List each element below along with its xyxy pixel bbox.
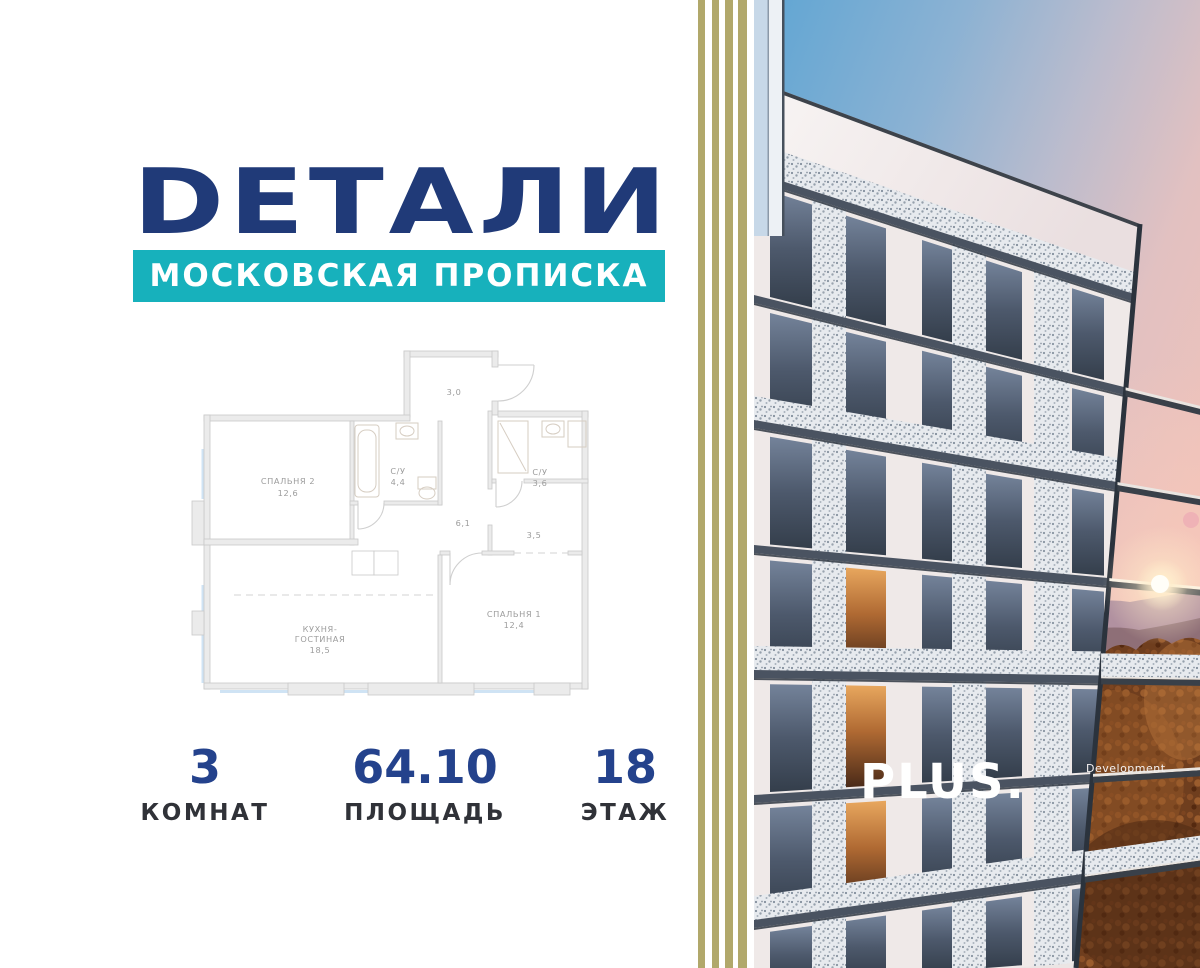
plan-dashed-lines [234, 553, 568, 595]
plan-room-labels: 3,0 СПАЛЬНЯ 2 12,6 С/У 4,4 С/У 3,6 6,1 3… [261, 387, 548, 655]
room-bedroom2-area: 12,6 [278, 488, 299, 498]
room-bedroom2-name: СПАЛЬНЯ 2 [261, 476, 315, 486]
developer-logo-suffix: Development [1086, 762, 1166, 775]
floor-plan: 3,0 СПАЛЬНЯ 2 12,6 С/У 4,4 С/У 3,6 6,1 3… [186, 349, 592, 699]
left-tower-corner [754, 0, 785, 236]
brand-logo: DЕТАЛИ [133, 160, 673, 246]
tagline-banner: МОСКОВСКАЯ ПРОПИСКА [133, 250, 665, 302]
stat-rooms-label: КОМНАТ [120, 800, 290, 826]
building-photo-svg [754, 0, 1200, 968]
divider-stripe [738, 0, 747, 968]
room-hallway-area: 6,1 [456, 518, 471, 528]
room-bath1-area: 4,4 [391, 477, 406, 487]
building-photo: PLUS. Development [754, 0, 1200, 968]
room-kitchen-name2: ГОСТИНАЯ [295, 634, 346, 644]
developer-logo: PLUS. Development [860, 758, 1026, 806]
stat-area-value: 64.10 [320, 744, 530, 790]
room-hall-area: 3,0 [447, 387, 462, 397]
room-bath2-name: С/У [532, 467, 547, 477]
stat-floor-label: ЭТАЖ [560, 800, 690, 826]
divider-stripe [725, 0, 733, 968]
stat-area: 64.10 ПЛОЩАДЬ [320, 744, 530, 826]
brand-logo-text: DЕТАЛИ [133, 160, 671, 246]
stat-floor: 18 ЭТАЖ [560, 744, 690, 826]
plan-fixtures [355, 421, 586, 499]
real-estate-card: DЕТАЛИ МОСКОВСКАЯ ПРОПИСКА [0, 0, 1200, 968]
floor-plan-svg: 3,0 СПАЛЬНЯ 2 12,6 С/У 4,4 С/У 3,6 6,1 3… [186, 349, 592, 699]
room-corridor-area: 3,5 [527, 530, 542, 540]
plan-walls [192, 351, 588, 695]
developer-logo-text: PLUS. [860, 754, 1026, 810]
tagline-text: МОСКОВСКАЯ ПРОПИСКА [149, 258, 648, 294]
room-bedroom1-area: 12,4 [504, 620, 525, 630]
room-bath2-area: 3,6 [533, 478, 548, 488]
room-bedroom1-name: СПАЛЬНЯ 1 [487, 609, 541, 619]
room-bath1-name: С/У [390, 466, 405, 476]
plan-kitchen-island [352, 551, 398, 575]
lens-flare [1183, 512, 1199, 528]
stat-rooms-value: 3 [120, 744, 290, 790]
stat-area-label: ПЛОЩАДЬ [320, 800, 530, 826]
divider-stripe [712, 0, 719, 968]
room-kitchen-name1: КУХНЯ- [303, 624, 338, 634]
stat-floor-value: 18 [560, 744, 690, 790]
divider-stripe [698, 0, 705, 968]
stat-rooms: 3 КОМНАТ [120, 744, 290, 826]
room-kitchen-area: 18,5 [310, 645, 331, 655]
apartment-stats: 3 КОМНАТ 64.10 ПЛОЩАДЬ 18 ЭТАЖ [120, 744, 690, 826]
